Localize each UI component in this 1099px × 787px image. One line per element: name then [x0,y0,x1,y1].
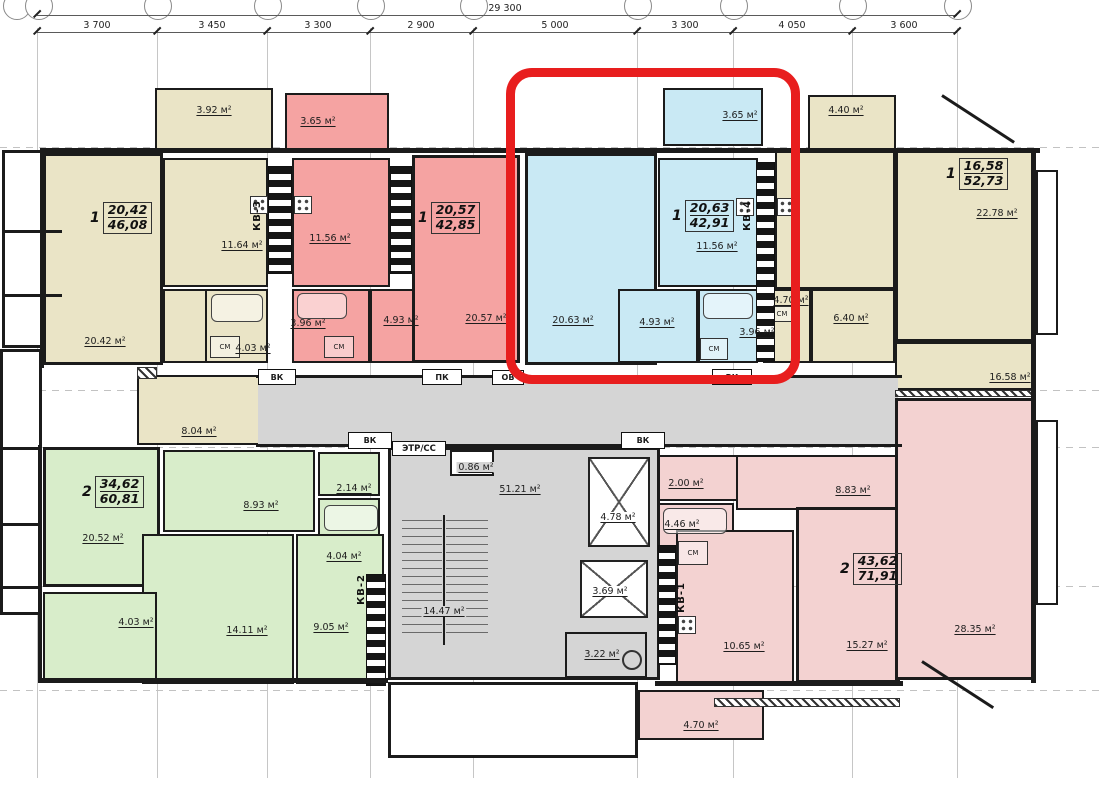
vent-tag: ВК [348,432,392,449]
room-kv1-hall[interactable] [736,455,900,510]
room-red-kitchen[interactable] [292,158,390,287]
area-kv2-bath: 4.04 м² [326,551,361,562]
apt-total-area: 71,91 [858,569,898,583]
unit-label-kv3: КВ-3 [252,200,263,231]
dim-segment: 3 600 [890,20,917,31]
area-kv2-balcony: 4.03 м² [118,617,153,628]
apt-total-area: 60,81 [100,492,140,506]
dimension-line-segments [37,32,957,33]
area-kv1-hall: 8.83 м² [835,485,870,496]
apt-living-area: 43,62 [858,554,898,569]
area-kv1-kitchen: 10.65 м² [723,641,764,652]
washing-machine: СМ [678,541,708,565]
apt-living-area: 34,62 [100,477,140,492]
fire-tag-label: ПК [435,373,448,382]
elevator-large [588,457,650,547]
vent-tag-label: ВК [364,436,377,445]
dim-segment: 3 450 [198,20,225,31]
room-kv1-living2[interactable] [796,507,900,683]
electrical-panel-tag: ЭТР/СС [392,441,446,456]
area-kv3-balcony: 3.92 м² [196,105,231,116]
bathtub [324,505,378,531]
section-hatch [895,390,1035,397]
room-kv1-living1[interactable] [895,398,1035,680]
area-red-balcony: 3.65 м² [300,116,335,127]
apt-rooms-count: 2 [82,484,92,500]
room-right-balcony[interactable] [808,95,896,150]
area-kv1-living1: 28.35 м² [954,624,995,635]
exterior-wall [38,445,42,683]
panel-label: ЭТР/СС [402,444,436,454]
area-core-vestibule: 0.86 м² [457,462,496,473]
area-kv3-hall: 8.04 м² [181,426,216,437]
vent-tag-label: ВК [637,436,650,445]
exterior-wall [38,678,388,683]
dimension-line-total [37,15,957,16]
apt-rooms-count: 1 [418,210,428,226]
area-right-hall: 6.40 м² [833,313,868,324]
bathtub [211,294,263,322]
apt-total-area: 42,85 [436,218,476,232]
apt-living-area: 20,42 [108,203,148,218]
vent-tag: ВК [258,369,296,385]
apt-total-area: 46,08 [108,218,148,232]
vent-shaft [268,166,292,274]
room-kv3-hall-small[interactable] [163,289,207,363]
washing-machine: СМ [324,336,354,358]
unit-label-kv1: КВ-1 [676,582,687,613]
apt-label-kv3: 1 20,4246,08 [90,202,152,234]
dim-total: 29 300 [488,3,521,14]
entrance-lobby [388,682,638,758]
room-kv3-living[interactable] [43,153,163,365]
wall [0,523,42,526]
area-red-bath: 3.96 м² [290,318,325,329]
area-right-bedroom: 16.58 м² [989,372,1030,383]
exterior-wall [655,681,903,686]
dim-segment: 4 050 [778,20,805,31]
riser-symbol [622,650,642,670]
section-hatch [137,367,157,379]
area-red-kitchen: 11.56 м² [309,233,350,244]
area-kv1-balcony: 4.70 м² [683,720,718,731]
apt-label-right: 1 16,5852,73 [946,158,1008,190]
highlight-annotation [506,68,800,384]
room-kv2-balcony[interactable] [43,592,157,680]
area-core-utility: 3.22 м² [583,649,622,660]
axis-bubble [357,0,385,20]
stove-icon [294,196,312,214]
stove-icon [678,616,696,634]
dim-segment: 3 300 [671,20,698,31]
axis-bubble [624,0,652,20]
bay-window [1036,170,1058,335]
stair-divider [443,515,445,645]
axis-bubble [144,0,172,20]
apt-living-area: 16,58 [964,159,1004,174]
bay-window-edge [941,94,1015,143]
apt-rooms-count: 1 [90,210,100,226]
area-core-corridor: 51.21 м² [498,484,543,495]
adjacent-section-room [0,349,42,615]
area-right-balcony: 4.40 м² [828,105,863,116]
vent-shaft [366,574,386,686]
area-red-hall: 4.93 м² [383,315,418,326]
room-right-hall[interactable] [811,289,895,363]
area-kv3-bath: 4.03 м² [235,343,270,354]
room-kv2-living2[interactable] [142,534,294,684]
apt-rooms-count: 2 [840,561,850,577]
axis-bubble [839,0,867,20]
stair-flight [446,520,488,640]
area-red-living: 20.57 м² [465,313,506,324]
bay-window [1036,420,1058,605]
area-kv2-hall: 8.93 м² [243,500,278,511]
room-red-living[interactable] [412,155,520,363]
exterior-wall [40,150,44,368]
area-elevator-small: 3.69 м² [591,586,630,597]
room-kv2-hall[interactable] [163,450,315,532]
bathtub [297,293,347,319]
area-stairwell: 14.47 м² [422,606,467,617]
vent-tag: ВК [621,432,665,449]
vent-shaft [390,166,412,274]
apt-rooms-count: 1 [946,166,956,182]
apt-label-kv1: 2 43,6271,91 [840,553,902,585]
area-right-living-large: 22.78 м² [976,208,1017,219]
wall [2,230,62,233]
area-kv3-living: 20.42 м² [84,336,125,347]
apt-label-red: 1 20,5742,85 [418,202,480,234]
axis-bubble [254,0,282,20]
stair-flight [402,520,442,640]
area-kv2-kitchen: 9.05 м² [313,622,348,633]
axis-bubble [720,0,748,20]
area-kv3-kitchen: 11.64 м² [221,240,262,251]
room-kv3-balcony[interactable] [155,88,273,150]
wall [0,447,42,450]
dim-segment: 3 300 [304,20,331,31]
section-hatch [714,698,900,707]
exterior-wall [1031,148,1036,683]
apt-total-area: 52,73 [964,174,1004,188]
unit-label-kv2: КВ-2 [356,574,367,605]
axis-bubble [460,0,488,20]
dim-segment: 5 000 [541,20,568,31]
floor-plan: 29 300 3 700 3 450 3 300 2 900 5 000 3 3… [0,0,1099,787]
area-kv2-living1: 20.52 м² [82,533,123,544]
apt-living-area: 20,57 [436,203,476,218]
area-kv2-wc: 2.14 м² [336,483,371,494]
dim-segment: 3 700 [83,20,110,31]
area-kv1-bath: 4.46 м² [664,519,699,530]
fire-tag: ПК [422,369,462,385]
dim-segment: 2 900 [407,20,434,31]
vent-shaft [658,545,676,665]
area-kv1-wc: 2.00 м² [668,478,703,489]
area-kv1-living2: 15.27 м² [846,640,887,651]
area-elevator-large: 4.78 м² [599,512,638,523]
wall [2,294,62,297]
vent-tag-label: ВК [271,373,284,382]
wall [0,586,42,589]
area-kv2-living2: 14.11 м² [226,625,267,636]
apt-label-kv2: 2 34,6260,81 [82,476,144,508]
